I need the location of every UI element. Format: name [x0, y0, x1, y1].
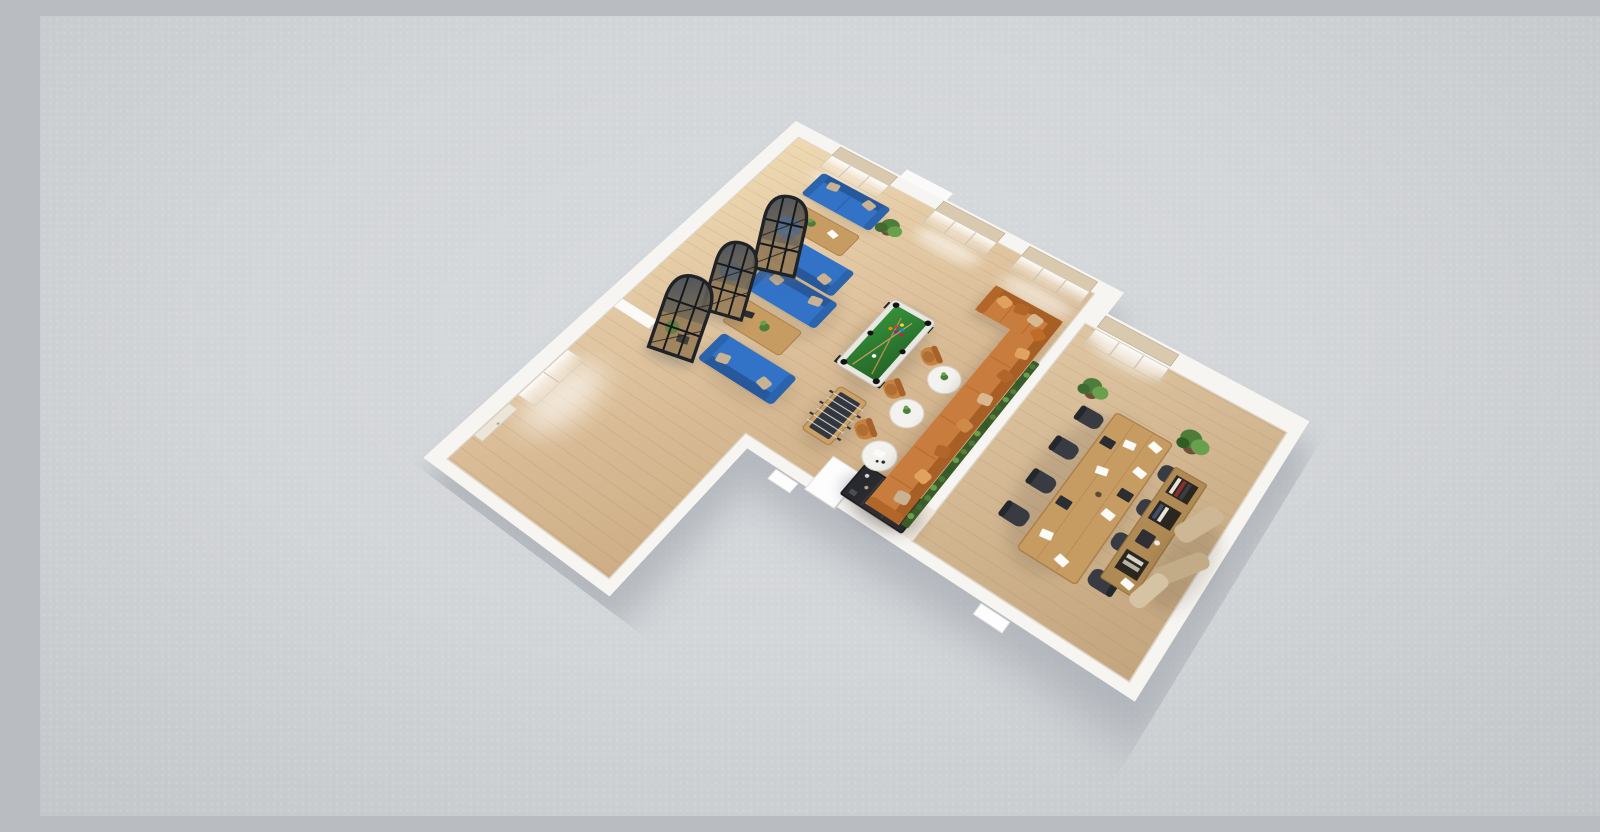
floor-plan-svg [407, 107, 1350, 816]
perspective-scene [40, 16, 1600, 816]
floor-plan-render: 3D isometric floor plan rendering of an … [40, 16, 1600, 816]
floor-plan [407, 107, 1350, 816]
